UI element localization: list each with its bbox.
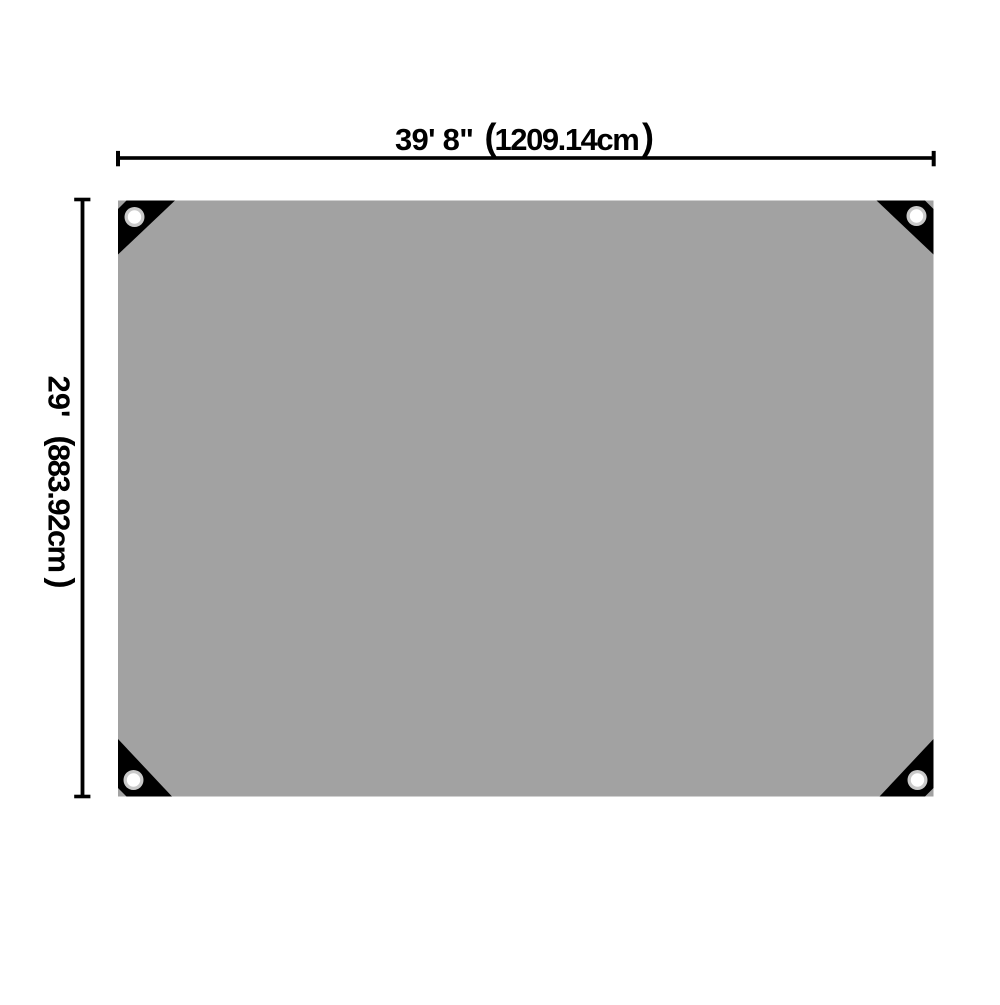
svg-text:29': 29' bbox=[42, 376, 77, 418]
svg-text:1209.14cm: 1209.14cm bbox=[495, 122, 639, 157]
svg-text:): ) bbox=[642, 116, 654, 157]
svg-text:883.92cm: 883.92cm bbox=[42, 444, 77, 572]
svg-text:39' 8": 39' 8" bbox=[395, 122, 473, 157]
svg-text:): ) bbox=[44, 578, 81, 589]
